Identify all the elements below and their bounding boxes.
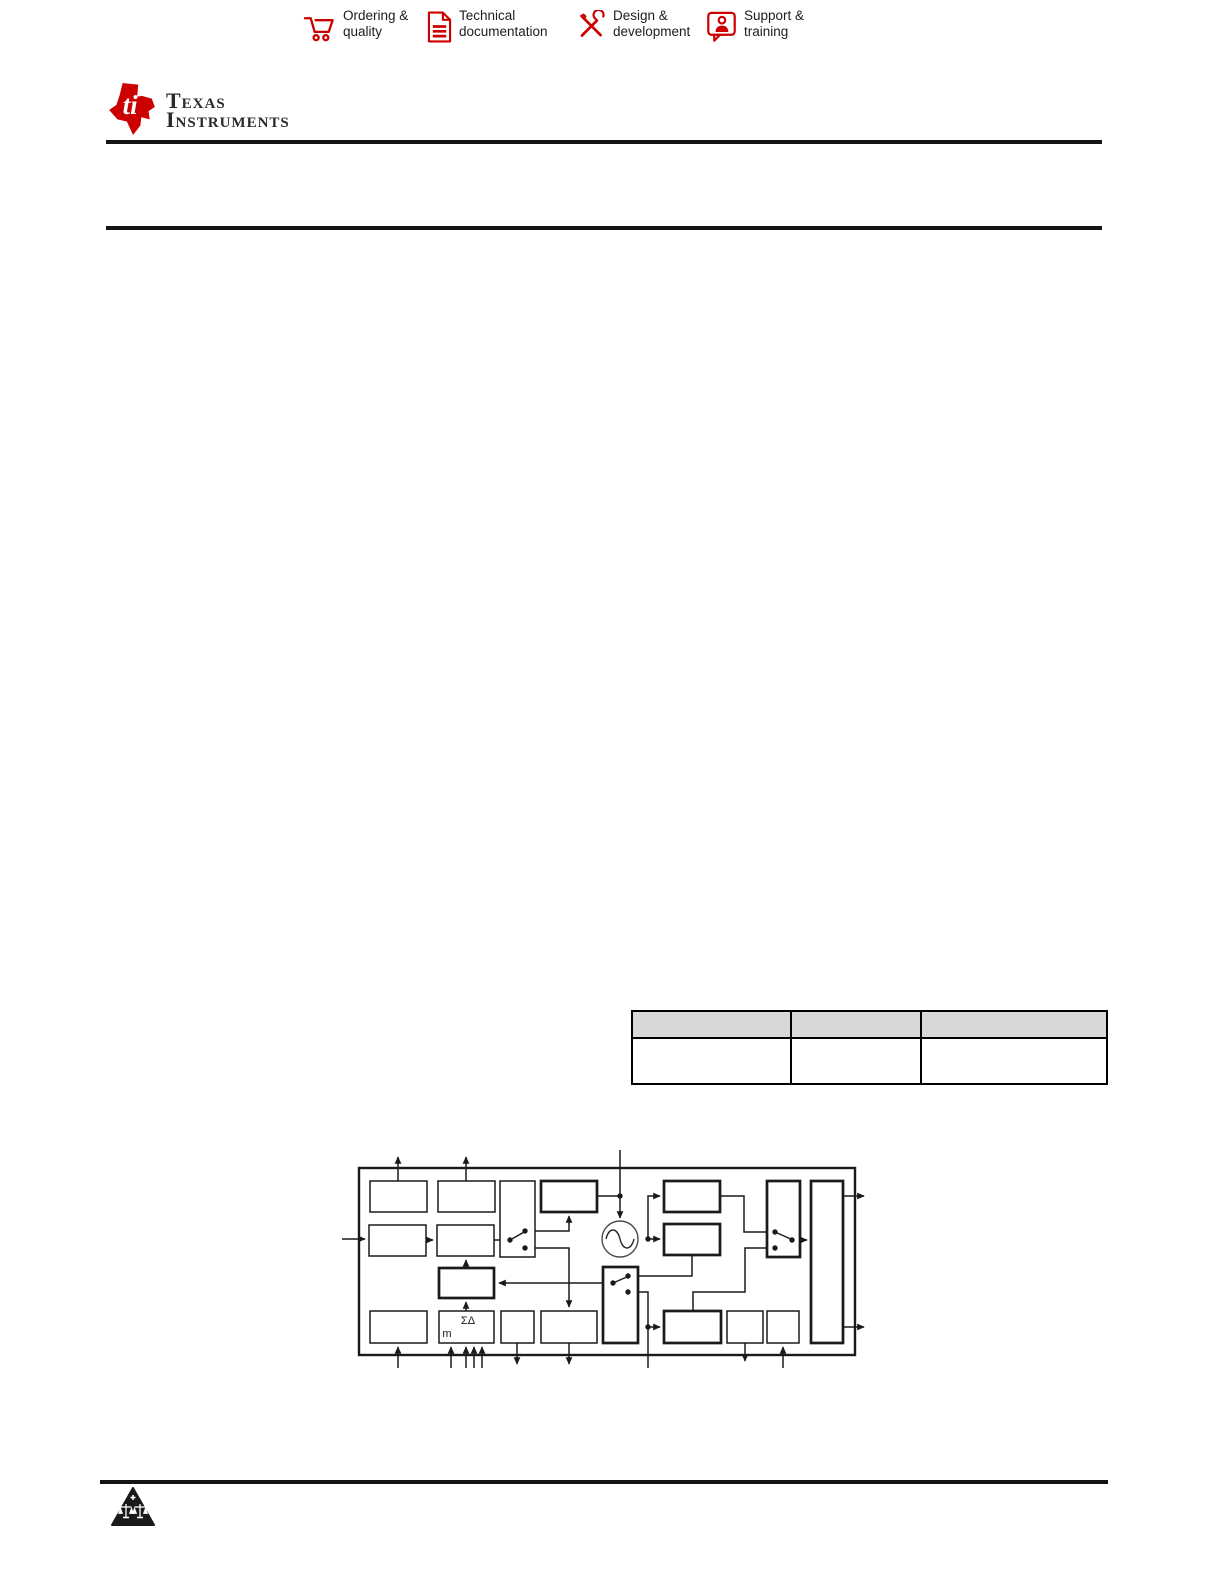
cart-icon	[303, 10, 336, 44]
switch-block	[500, 1181, 535, 1257]
block-rect	[767, 1311, 799, 1343]
nav-label-line1: Ordering &	[343, 8, 408, 24]
nav-item-support-training[interactable]: Support & training	[706, 8, 804, 44]
m-label: m	[442, 1328, 451, 1340]
nav-label-line1: Technical	[459, 8, 548, 24]
nav-label: Support & training	[744, 8, 804, 39]
footer-rule	[100, 1480, 1108, 1484]
block-rect	[541, 1181, 597, 1212]
nav-label-line1: Support &	[744, 8, 804, 24]
block-rect	[664, 1311, 721, 1343]
nav-label: Technical documentation	[459, 8, 548, 39]
header-rule-bottom	[106, 226, 1102, 230]
table-header-cell	[922, 1012, 1106, 1039]
block-rect	[501, 1311, 534, 1343]
sigma-delta-label: ΣΔ	[461, 1315, 476, 1327]
table-body-cell	[633, 1039, 792, 1083]
spec-table	[631, 1010, 1108, 1085]
switch-block	[767, 1181, 800, 1257]
block-rect	[811, 1181, 843, 1343]
brand-wordmark: Texas Instruments	[166, 91, 290, 129]
support-icon	[706, 10, 737, 44]
block-rect	[437, 1225, 494, 1256]
nav-label: Design & development	[613, 8, 690, 39]
document-icon	[427, 10, 452, 44]
nav-label-line2: development	[613, 24, 690, 40]
diagram-blocks	[369, 1181, 843, 1343]
svg-text:ti: ti	[123, 90, 139, 120]
block-rect	[438, 1181, 495, 1212]
scales-triangle-icon	[111, 1487, 155, 1527]
texas-map-icon: ti	[106, 82, 158, 136]
nav-item-design-development[interactable]: Design & development	[577, 8, 690, 42]
block-rect	[664, 1224, 720, 1255]
design-icon	[577, 10, 606, 42]
ti-logo: ti Texas Instruments	[106, 82, 290, 136]
block-rect	[439, 1268, 494, 1298]
functional-block-diagram: ΣΔ m	[330, 1140, 875, 1375]
nav-item-technical-documentation[interactable]: Technical documentation	[427, 8, 548, 44]
block-rect	[370, 1311, 427, 1343]
brand-line2: Instruments	[166, 110, 290, 129]
nav-item-ordering-quality[interactable]: Ordering & quality	[303, 8, 408, 44]
table-body-cell	[792, 1039, 922, 1083]
block-rect	[664, 1181, 720, 1212]
nav-label: Ordering & quality	[343, 8, 408, 39]
datasheet-page: Ordering & quality Technical documentati…	[0, 0, 1224, 1584]
block-rect	[541, 1311, 597, 1343]
nav-label-line1: Design &	[613, 8, 690, 24]
diagram-switches	[507, 1193, 794, 1329]
block-rect	[369, 1225, 426, 1256]
block-rect	[370, 1181, 427, 1212]
nav-label-line2: documentation	[459, 24, 548, 40]
switch-block	[603, 1267, 638, 1343]
block-rect	[727, 1311, 763, 1343]
table-body-cell	[922, 1039, 1106, 1083]
nav-label-line2: quality	[343, 24, 408, 40]
nav-label-line2: training	[744, 24, 804, 40]
oscillator-symbol	[602, 1221, 638, 1257]
header-rule-top	[106, 140, 1102, 144]
table-header-cell	[633, 1012, 792, 1039]
table-header-cell	[792, 1012, 922, 1039]
